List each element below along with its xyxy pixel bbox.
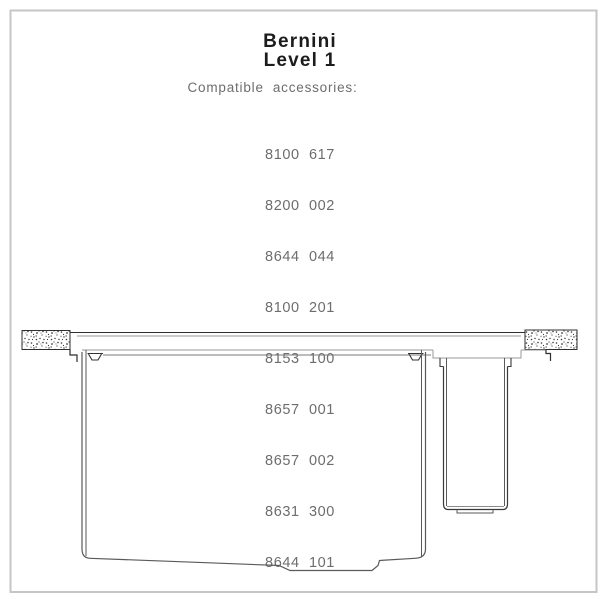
- page-border-frame: [11, 11, 597, 593]
- secondary-bowl-shoulder-right: [508, 358, 512, 367]
- countertop-right-section: [525, 330, 577, 350]
- secondary-bowl-outline: [444, 367, 508, 510]
- countertop-left-section: [22, 331, 70, 350]
- rim-underside-line-middle: [433, 350, 521, 358]
- sink-cross-section-drawing: [0, 0, 600, 599]
- secondary-bowl-shoulder-left: [440, 358, 444, 367]
- counter-step-left: [70, 350, 77, 363]
- spec-sheet-page: Bernini Level 1 Compatible accessories: …: [0, 0, 600, 599]
- counter-step-right: [546, 349, 551, 361]
- main-bowl-outline: [82, 352, 426, 571]
- mounting-clip-left: [88, 354, 104, 361]
